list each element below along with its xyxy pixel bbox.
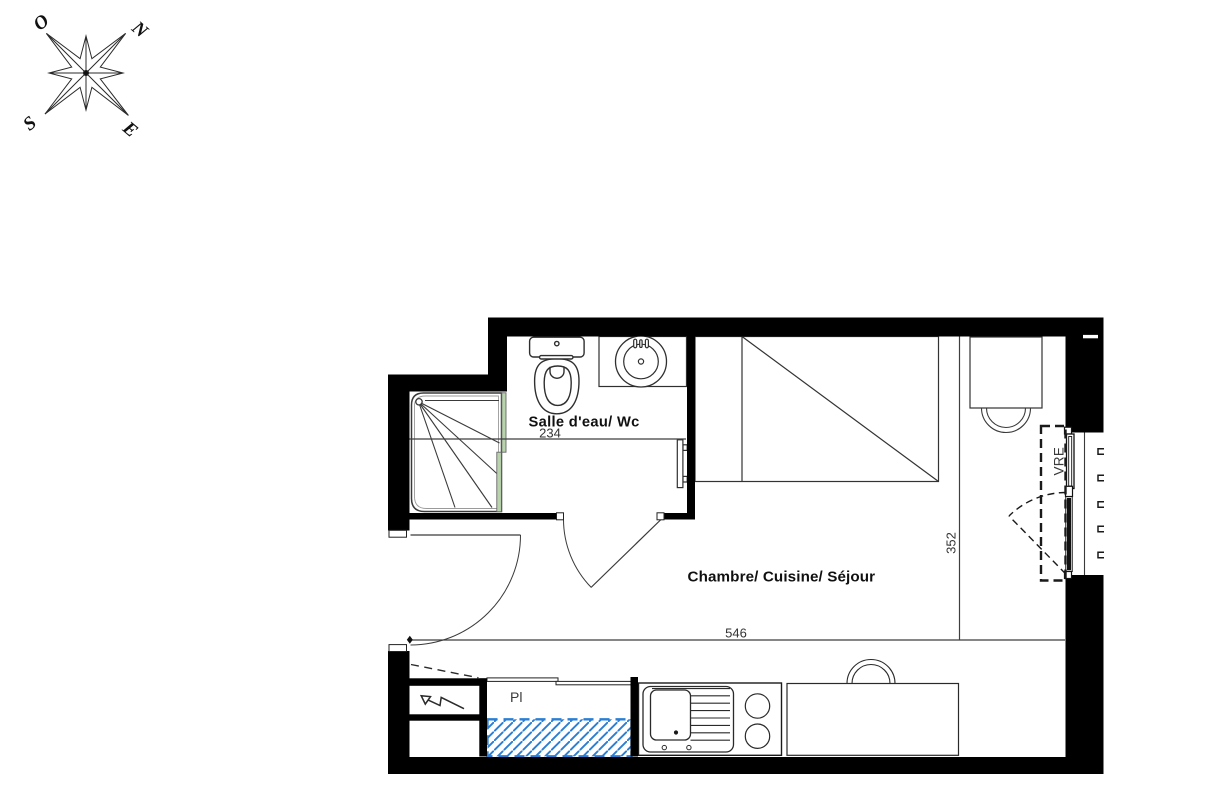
svg-text:Pl: Pl [510, 689, 522, 705]
svg-text:546: 546 [725, 626, 747, 641]
svg-text:Chambre/ Cuisine/ Séjour: Chambre/ Cuisine/ Séjour [688, 569, 876, 586]
svg-text:VRE: VRE [1052, 447, 1067, 476]
svg-text:352: 352 [944, 532, 959, 554]
svg-text:234: 234 [539, 426, 561, 441]
